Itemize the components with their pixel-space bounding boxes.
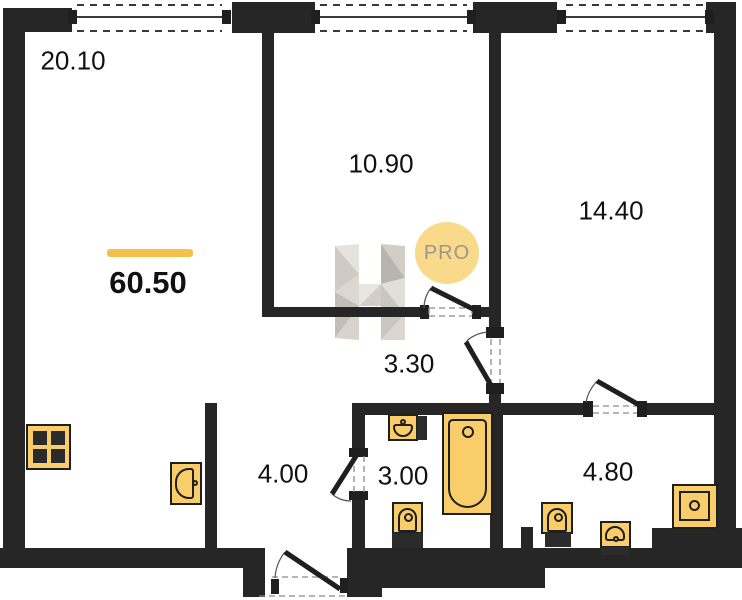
total-area-label: 60.50: [109, 265, 187, 301]
doorframe: [349, 491, 368, 500]
door-leaf-bathroom2: [597, 381, 641, 406]
bathtub-drain: [462, 426, 474, 438]
window-1-glass-line: [77, 16, 222, 18]
bathroom1-sink-mount: [417, 416, 427, 440]
kitchen-sink-icon: [170, 462, 202, 505]
stove-burner: [51, 449, 65, 463]
total-area-accent-bar: [107, 249, 193, 257]
room-area-bedroom1: 10.90: [348, 149, 413, 180]
wall-top-pier-b: [473, 2, 557, 33]
pro-badge-label: PRO: [424, 242, 470, 265]
bathroom2-sink-icon: [600, 521, 631, 548]
doorframe: [486, 327, 504, 338]
window-2-glass-line: [320, 16, 467, 18]
window-3-end-block: [705, 10, 714, 24]
wall-hallway-top-left: [262, 307, 420, 317]
wall-bath-top-right: [647, 403, 715, 415]
door-opening-bedroom1: [429, 308, 472, 316]
window-1-outer-dash: [77, 4, 222, 6]
wall-bottom-right-block: [652, 528, 742, 568]
toilet-tank: [392, 533, 423, 548]
door-leaf-bathroom1: [332, 453, 358, 494]
room-area-living: 20.10: [40, 46, 105, 77]
doorframe: [349, 448, 368, 457]
wall-living-bedroom1: [262, 30, 274, 317]
window-1-end-block: [68, 10, 77, 24]
pro-badge: PRO: [415, 222, 479, 284]
washbasin-drain: [689, 500, 700, 511]
watermark-h-logo: [335, 244, 405, 340]
sink-faucet: [400, 419, 406, 425]
sink-faucet: [613, 536, 619, 542]
stove-burner: [51, 431, 65, 445]
doorframe: [340, 578, 348, 593]
wall-vestibule-left: [243, 548, 265, 597]
doorframe: [472, 305, 481, 319]
window-2-outer-dash: [320, 4, 467, 6]
toilet-icon: [541, 502, 573, 534]
wall-top-pier-a: [232, 2, 315, 33]
room-area-bedroom2: 14.40: [578, 196, 643, 227]
door-leaf-bedroom1: [431, 288, 477, 311]
door-opening-bathroom1: [354, 456, 364, 492]
window-2-inner-dash: [320, 30, 467, 32]
sink-base: [602, 547, 629, 555]
doorframe: [420, 305, 429, 319]
room-area-corridor: 4.00: [258, 459, 309, 490]
wall-vestibule-right: [347, 548, 382, 597]
window-3-glass-line: [566, 16, 705, 18]
wall-top-left-corner: [3, 8, 72, 32]
bathtub-icon: [442, 412, 493, 515]
sink-faucet: [192, 480, 198, 486]
doorframe: [583, 401, 593, 417]
door-leaf-entrance: [285, 552, 340, 589]
doorframe: [486, 383, 504, 394]
door-arc: [586, 381, 597, 402]
wall-duct-stub: [521, 527, 533, 548]
room-area-bathroom2: 4.80: [583, 457, 634, 488]
window-3-outer-dash: [566, 4, 705, 6]
window-2-end-block: [467, 10, 476, 24]
door-arc: [275, 552, 285, 578]
wall-kitchen-stub: [205, 403, 217, 568]
window-3-inner-dash: [566, 30, 705, 32]
toilet-icon: [392, 502, 423, 534]
door-opening-bedroom2: [491, 339, 500, 383]
stove-icon: [26, 424, 71, 470]
room-area-bathroom1: 3.00: [378, 461, 429, 492]
door-arc: [466, 332, 487, 342]
toilet-tank: [545, 533, 571, 547]
window-3-end-block: [557, 10, 566, 24]
wall-bedroom1-bedroom2: [489, 30, 501, 329]
stove-burner: [33, 431, 47, 445]
wall-bottom-left: [0, 548, 243, 568]
toilet-flush: [554, 513, 563, 522]
window-1-inner-dash: [77, 30, 222, 32]
washbasin-icon: [672, 484, 718, 529]
wall-right-exterior: [714, 2, 736, 528]
door-opening-bathroom2: [593, 406, 637, 413]
stove-burner: [33, 449, 47, 463]
room-area-hallway: 3.30: [384, 349, 435, 380]
wall-bathroom1-left-top: [352, 403, 365, 449]
doorframe: [637, 401, 647, 417]
doorframe: [271, 579, 279, 594]
toilet-flush: [404, 513, 413, 522]
wall-bottom-mid-thick: [382, 548, 545, 588]
bathroom1-sink-icon: [388, 414, 418, 441]
floor-plan: PRO: [0, 0, 742, 600]
window-2-end-block: [311, 10, 320, 24]
sink-basin: [393, 424, 413, 437]
door-leaf-bedroom2: [466, 342, 492, 387]
window-1-end-block: [222, 10, 231, 24]
wall-left-exterior: [3, 8, 25, 568]
